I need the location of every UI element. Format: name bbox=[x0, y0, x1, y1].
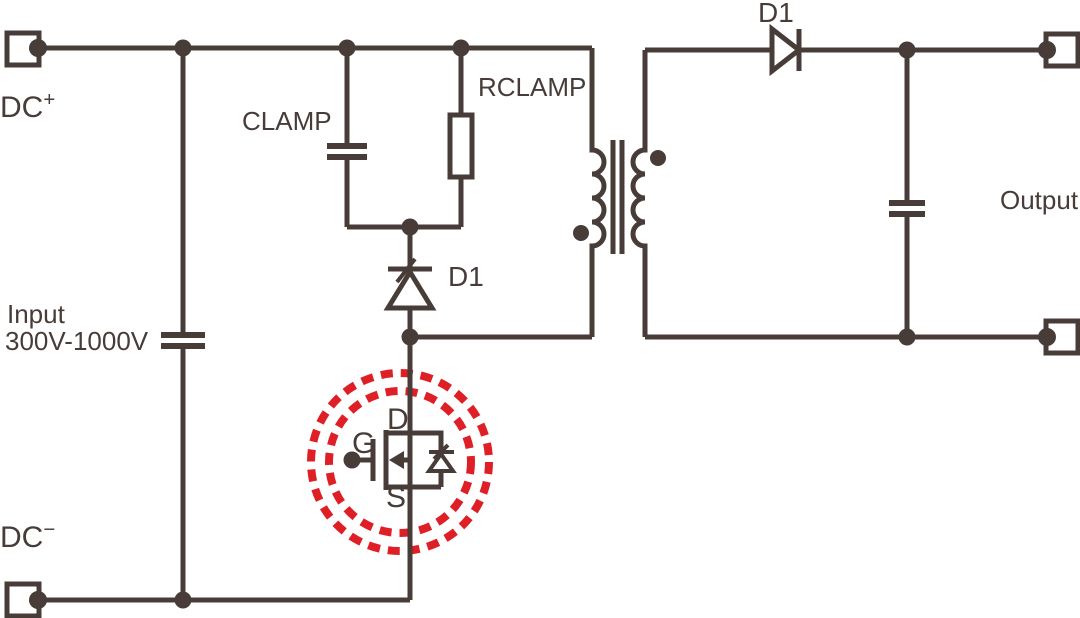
transformer bbox=[573, 48, 666, 337]
output-diode bbox=[772, 29, 799, 71]
junction-dot bbox=[175, 40, 192, 57]
mosfet-symbol bbox=[344, 337, 455, 600]
junction-dot bbox=[339, 40, 356, 57]
dc-negative-label: DC− bbox=[0, 520, 55, 554]
output-diode-label: D1 bbox=[758, 0, 794, 27]
junction-dot bbox=[899, 329, 916, 346]
schematic-canvas: DC+ DC− Input 300V-1000V CLAMP RCLAMP D1… bbox=[0, 0, 1080, 618]
clamp-diode bbox=[388, 227, 432, 337]
dc-positive-label: DC+ bbox=[0, 90, 55, 124]
dc-positive-text: DC bbox=[0, 91, 43, 124]
input-range-label: 300V-1000V bbox=[5, 328, 148, 355]
transformer-primary-winding bbox=[592, 48, 604, 337]
output-label: Output bbox=[1000, 187, 1078, 214]
mosfet-source-label: S bbox=[386, 482, 406, 514]
mosfet-body-diode bbox=[410, 433, 454, 487]
clamp-diode-label: D1 bbox=[448, 262, 484, 291]
mosfet-drain-label: D bbox=[387, 404, 409, 436]
clamp-capacitor bbox=[327, 48, 367, 227]
primary-polarity-dot bbox=[573, 225, 589, 241]
junction-dot bbox=[175, 592, 192, 609]
dc-positive-sign: + bbox=[43, 89, 55, 111]
output-capacitor bbox=[889, 50, 925, 337]
junction-dot bbox=[453, 40, 470, 57]
clamp-capacitor-label: CLAMP bbox=[242, 108, 332, 135]
mosfet-gate-label: G bbox=[352, 428, 375, 460]
dc-negative-text: DC bbox=[0, 521, 43, 554]
input-capacitor bbox=[161, 48, 205, 600]
secondary-polarity-dot bbox=[650, 150, 666, 166]
transformer-secondary-winding bbox=[633, 50, 645, 337]
clamp-resistor bbox=[450, 48, 472, 227]
dc-negative-sign: − bbox=[43, 519, 55, 541]
mosfet-body-arrow bbox=[389, 451, 404, 469]
input-label: Input bbox=[7, 301, 65, 328]
clamp-resistor-label: RCLAMP bbox=[478, 74, 586, 101]
